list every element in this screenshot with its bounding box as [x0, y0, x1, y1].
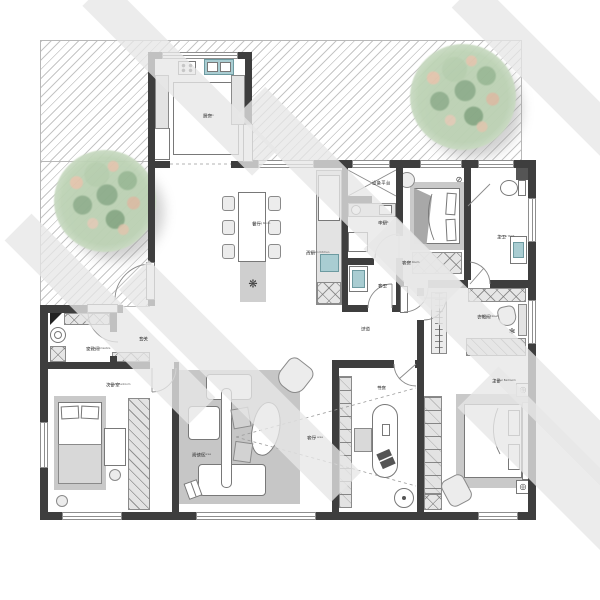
- flower-icon: ✻: [509, 328, 516, 336]
- dishwasher-icon: [320, 254, 339, 272]
- dining-table: [238, 192, 266, 262]
- bedroom2-pillow: [81, 406, 100, 420]
- closet-west-wall: [417, 288, 424, 296]
- guest-window: [420, 160, 462, 168]
- toilet-sink-icon: [352, 270, 365, 288]
- sofa-module-bottom: [198, 464, 266, 496]
- study-north-wall: [332, 360, 394, 368]
- dining-chair: [222, 196, 235, 211]
- sink-basin: [207, 62, 218, 72]
- guest-bath-wall: [464, 160, 471, 280]
- bedroom2-north-wall: [48, 362, 150, 369]
- guest-pillow: [445, 193, 457, 216]
- wetkit-door-arc: [375, 234, 399, 258]
- dining-window: [258, 160, 314, 168]
- washer-drum: [54, 331, 62, 339]
- tree-icon: [54, 150, 156, 252]
- wetkit-hob: [379, 205, 392, 215]
- wall-segment: [148, 161, 170, 168]
- closet-dresser: [518, 304, 527, 336]
- sofa-module-left: [188, 406, 220, 440]
- corner-shelf: [50, 313, 62, 325]
- bedroom2-east-wall: [172, 369, 179, 512]
- homedom-wall: [110, 313, 117, 332]
- socket-icon: ◎: [520, 386, 527, 394]
- bedroom2-north-wall: [174, 362, 179, 369]
- guest-south-wall: [428, 280, 468, 288]
- table-dot: [402, 496, 406, 500]
- master-wardrobe-end: [424, 494, 442, 510]
- south-window-bedroom2: [62, 512, 122, 520]
- kitchen-door-leaf: [243, 124, 253, 162]
- living-study-wall: [332, 368, 339, 512]
- equipment-window: [352, 160, 390, 168]
- kitchen-counter-left: [155, 75, 169, 129]
- dining-chair: [222, 220, 235, 235]
- guest-pillow: [445, 219, 456, 241]
- socket-icon: ◎: [520, 483, 527, 491]
- wetkit-toilet-wall: [348, 258, 374, 265]
- kitchen-window: [162, 52, 238, 59]
- bedroom2-stool: [109, 469, 121, 481]
- east-window-bath: [528, 198, 536, 242]
- bath-south-wall: [490, 280, 536, 288]
- toilet-bowl-icon: [500, 180, 518, 196]
- floor-cushion: [230, 407, 251, 430]
- service-col-wall-west: [342, 168, 348, 312]
- kitchen-wall-left: [148, 52, 155, 168]
- stove-icon: [178, 61, 196, 75]
- kitchen-counter-right: [231, 75, 245, 125]
- study-door-arc: [394, 364, 416, 386]
- foyer-wall: [118, 305, 123, 313]
- master-pillow: [508, 444, 520, 470]
- kitchen-wall-right: [245, 52, 252, 126]
- sink-basin: [220, 62, 231, 72]
- living-console-table: [221, 388, 232, 488]
- service-col-wall-east: [396, 168, 403, 236]
- west-kitchen-storage: [317, 282, 341, 304]
- bedroom-west-wall: [417, 320, 424, 512]
- dining-chair: [222, 244, 235, 259]
- floor-lamp-icon: [56, 495, 68, 507]
- foyer-wall: [48, 305, 88, 313]
- south-window-living: [196, 512, 316, 520]
- wall-segment: [231, 161, 252, 168]
- west-kitchen-cabinet: [318, 175, 340, 221]
- dining-chair: [268, 196, 281, 211]
- south-window-master: [478, 512, 518, 520]
- bath-sink-icon: [513, 242, 524, 258]
- wetkit-island: [348, 232, 368, 252]
- dryer-icon: [50, 346, 66, 362]
- equipment-wall: [348, 196, 372, 203]
- closet-island-bench: [466, 338, 526, 356]
- wetkit-sink-icon: [351, 205, 361, 215]
- master-pillow: [508, 410, 520, 436]
- west-wall: [40, 305, 48, 520]
- tv-media-wall: [339, 376, 352, 508]
- west-window-bedroom2: [40, 422, 48, 468]
- dining-west-wall: [148, 168, 155, 262]
- east-window-closet: [528, 300, 536, 344]
- guest-door-leaf: [400, 286, 408, 313]
- closet-chair: [496, 304, 518, 327]
- closet-top-wardrobe: [468, 288, 526, 302]
- study-north-wall: [415, 360, 424, 368]
- closet-rod: [431, 292, 447, 354]
- bedroom2-wardrobe: [128, 398, 150, 510]
- entry-door-leaf: [87, 304, 118, 313]
- plant-icon: ❋: [248, 279, 257, 290]
- dining-chair: [268, 244, 281, 259]
- bath-door-arc: [470, 262, 490, 284]
- homedom-upper-cabinet: [64, 313, 110, 325]
- floor-cushion: [233, 441, 254, 463]
- bath-cabinet: [516, 166, 528, 180]
- toilet-south-wall: [342, 305, 368, 312]
- bedroom2-desk: [104, 428, 126, 466]
- floor-plan-canvas: ❋ ⊘ ✻ ◎ ◎: [0, 0, 600, 600]
- bedroom2-pillow: [61, 406, 80, 420]
- master-wardrobe: [424, 396, 442, 494]
- shoe-cabinet: [112, 352, 150, 362]
- bath-window: [478, 160, 514, 168]
- bedroom2-blanket: [58, 444, 102, 484]
- phone-icon: [382, 424, 390, 436]
- fan-icon: ⊘: [456, 176, 463, 184]
- tree-icon: [410, 44, 516, 150]
- study-side-table: [354, 428, 372, 452]
- toilet-tank: [518, 180, 526, 196]
- shower-screen-line: [468, 184, 490, 206]
- wall-segment: [148, 300, 155, 306]
- homedom-wall: [110, 356, 117, 362]
- terrace-door-leaf: [146, 262, 155, 300]
